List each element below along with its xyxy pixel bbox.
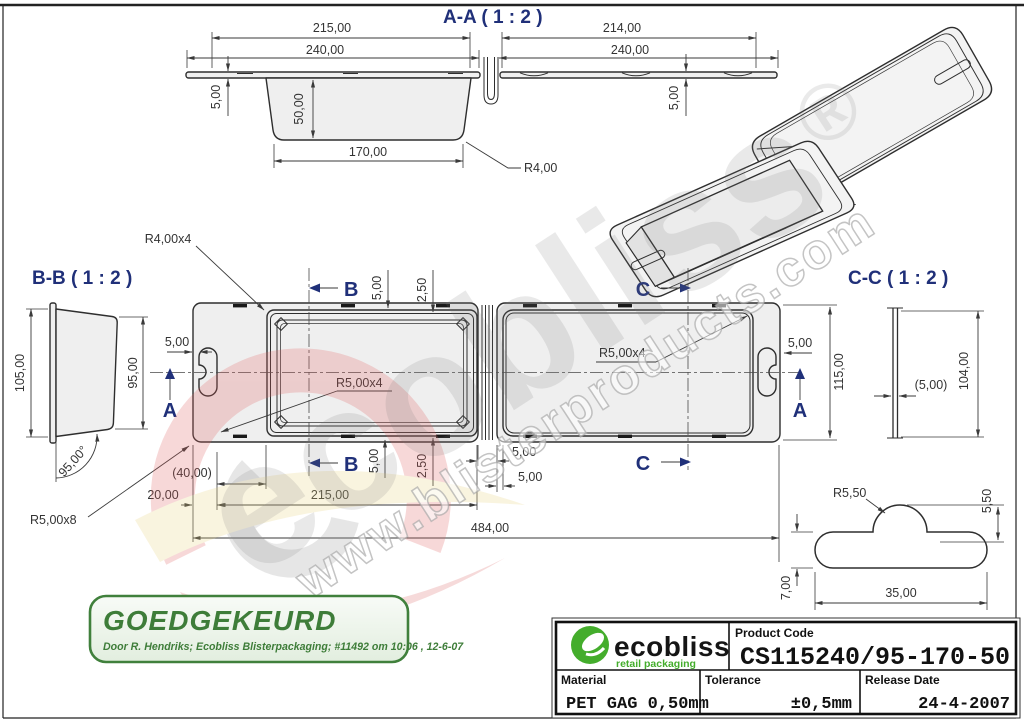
svg-text:A: A (163, 400, 177, 422)
approval-stamp: GOEDGEKEURD Door R. Hendriks; Ecobliss B… (90, 596, 464, 662)
technical-drawing-canvas: A-A ( 1 : 2 ) 215,00 240,00 5,00 50,00 1… (0, 0, 1024, 724)
aa-dim-240-right: 240,00 (611, 43, 649, 57)
plan-dim-40: (40,00) (172, 466, 212, 480)
section-bb-title: B-B ( 1 : 2 ) (32, 268, 132, 289)
logo-tagline: retail packaging (616, 658, 696, 670)
plan-label-r5x4-right: R5,00x4 (599, 346, 646, 360)
section-marker-b-bottom: B (309, 454, 358, 476)
section-cc-view: C-C ( 1 : 2 ) (5,00) 104,00 (848, 268, 984, 438)
aa-left-sheet (186, 72, 480, 78)
section-aa-view: A-A ( 1 : 2 ) 215,00 240,00 5,00 50,00 1… (186, 7, 778, 175)
aa-dim-50: 50,00 (292, 93, 306, 124)
section-marker-a-right: A (793, 368, 807, 422)
title-block: ecobliss retail packaging Product Code C… (552, 618, 1020, 718)
tab-dim-3500: 35,00 (885, 586, 916, 600)
section-marker-c-bottom: C (636, 453, 691, 475)
plan-dim-250-top: 2,50 (415, 278, 429, 302)
section-cc-title: C-C ( 1 : 2 ) (848, 268, 948, 289)
aa-dim-214: 214,00 (603, 21, 641, 35)
aa-dim-170: 170,00 (349, 145, 387, 159)
plan-label-r4x4: R4,00x4 (145, 232, 192, 246)
bb-flange (50, 303, 56, 443)
aa-label-r4: R4,00 (524, 161, 557, 175)
plan-dim-484: 484,00 (471, 521, 509, 535)
svg-text:C: C (636, 279, 650, 301)
release-date-value: 24-4-2007 (918, 695, 1010, 714)
plan-dim-20: 20,00 (147, 488, 178, 502)
tab-dim-550: 5,50 (980, 489, 994, 513)
plan-dim-250-bottom: 2,50 (415, 454, 429, 478)
plan-dim-5-slot-right: 5,00 (788, 336, 812, 350)
tolerance-value: ±0,5mm (791, 695, 852, 714)
product-code-value: CS115240/95-170-50 (740, 643, 1010, 672)
plan-dim-5-top: 5,00 (370, 276, 384, 300)
hang-tab-detail: R5,50 5,50 7,00 35,00 (779, 486, 1004, 610)
plan-dim-215: 215,00 (311, 488, 349, 502)
tolerance-label: Tolerance (705, 673, 761, 687)
tab-label-r550: R5,50 (833, 486, 866, 500)
cc-sheet (887, 308, 903, 438)
aa-dim-5-left: 5,00 (209, 85, 223, 109)
section-marker-a-left: A (163, 368, 177, 422)
plan-dim-115: 115,00 (832, 353, 846, 390)
cc-dim-104: 104,00 (957, 352, 971, 390)
svg-text:B: B (344, 279, 358, 301)
aa-hinge (484, 57, 498, 104)
section-marker-b-top: B (309, 279, 358, 301)
material-label: Material (561, 673, 606, 687)
isometric-view (610, 27, 991, 296)
bb-label-r5x8: R5,00x8 (30, 513, 77, 527)
aa-dim-5-right: 5,00 (667, 86, 681, 110)
tab-dim-700: 7,00 (779, 576, 793, 600)
plan-label-r5x4-left: R5,00x4 (336, 376, 383, 390)
plan-dim-5-slot-left: 5,00 (165, 335, 189, 349)
ecobliss-logo-icon (571, 626, 609, 664)
aa-dim-215: 215,00 (313, 21, 351, 35)
bb-body (56, 309, 117, 437)
material-value: PET GAG 0,50mm (566, 695, 709, 714)
cc-dim-5: (5,00) (915, 378, 948, 392)
bb-dim-95: 95,00 (126, 357, 140, 388)
section-aa-title: A-A ( 1 : 2 ) (443, 7, 543, 28)
plan-view: B B C C A A R4,0 (145, 232, 846, 562)
svg-text:A: A (793, 400, 807, 422)
plan-dim-5-hinge-b: 5,00 (518, 470, 542, 484)
stamp-title: GOEDGEKEURD (103, 605, 336, 636)
svg-text:B: B (344, 454, 358, 476)
blueprint-page: A-A ( 1 : 2 ) 215,00 240,00 5,00 50,00 1… (0, 0, 1024, 724)
svg-text:C: C (636, 453, 650, 475)
aa-dim-240-left: 240,00 (306, 43, 344, 57)
bb-dim-105: 105,00 (13, 354, 27, 392)
product-code-label: Product Code (735, 626, 814, 640)
plan-dim-5-bottom: 5,00 (367, 449, 381, 473)
release-date-label: Release Date (865, 673, 940, 687)
plan-dim-5-hinge-a: 5,00 (512, 445, 536, 459)
stamp-note: Door R. Hendriks; Ecobliss Blisterpackag… (103, 641, 464, 653)
hang-tab-outline (815, 505, 987, 568)
